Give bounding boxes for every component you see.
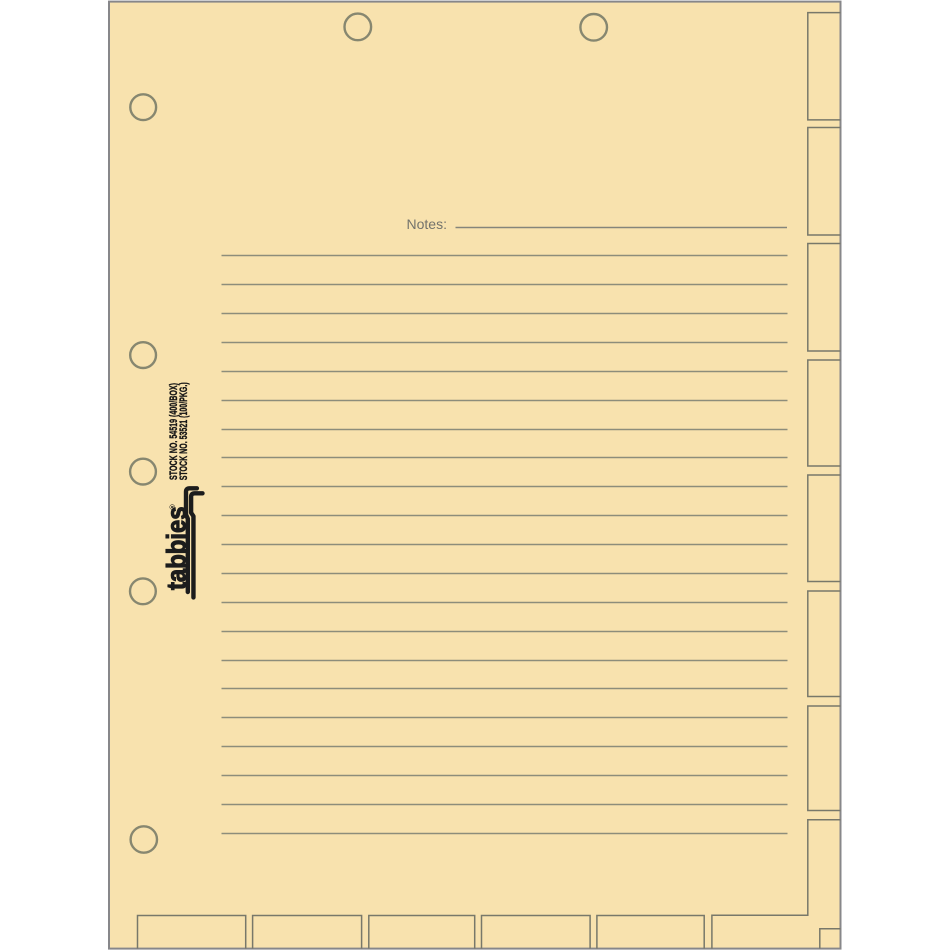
svg-text:Notes:: Notes: [407, 216, 447, 232]
svg-text:STOCK NO. 53521 (100/PKG.): STOCK NO. 53521 (100/PKG.) [178, 382, 190, 480]
svg-text:®: ® [168, 504, 177, 510]
